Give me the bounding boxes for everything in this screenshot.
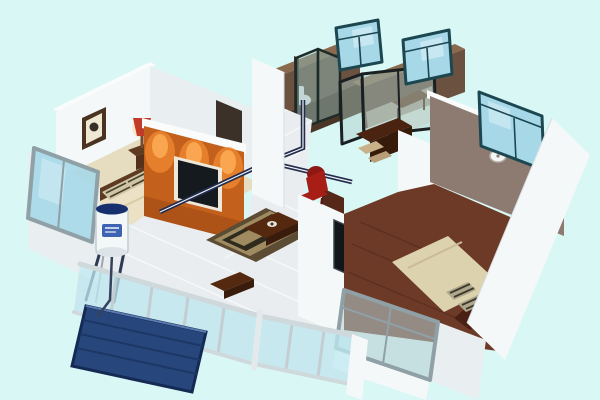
floorplan-render: 3D isometric cutaway floor plan render o… [0,0,600,400]
tank-cap [96,204,128,215]
downlight-hotspot [220,150,236,174]
window-kitchen [403,30,452,84]
downlight-hotspot [152,134,168,158]
hallway-pillar [252,58,284,208]
wall-clock-center [496,154,499,157]
floorplan-svg: 3D isometric cutaway floor plan render o… [0,0,600,400]
lamp-stem [141,136,144,148]
tank-label [102,224,122,237]
window-bathroom [336,20,382,70]
decor-bowl-center [271,223,274,226]
tank-bottom [97,247,127,257]
shower-glass-right [318,49,340,122]
wall-art-plant [90,123,99,132]
